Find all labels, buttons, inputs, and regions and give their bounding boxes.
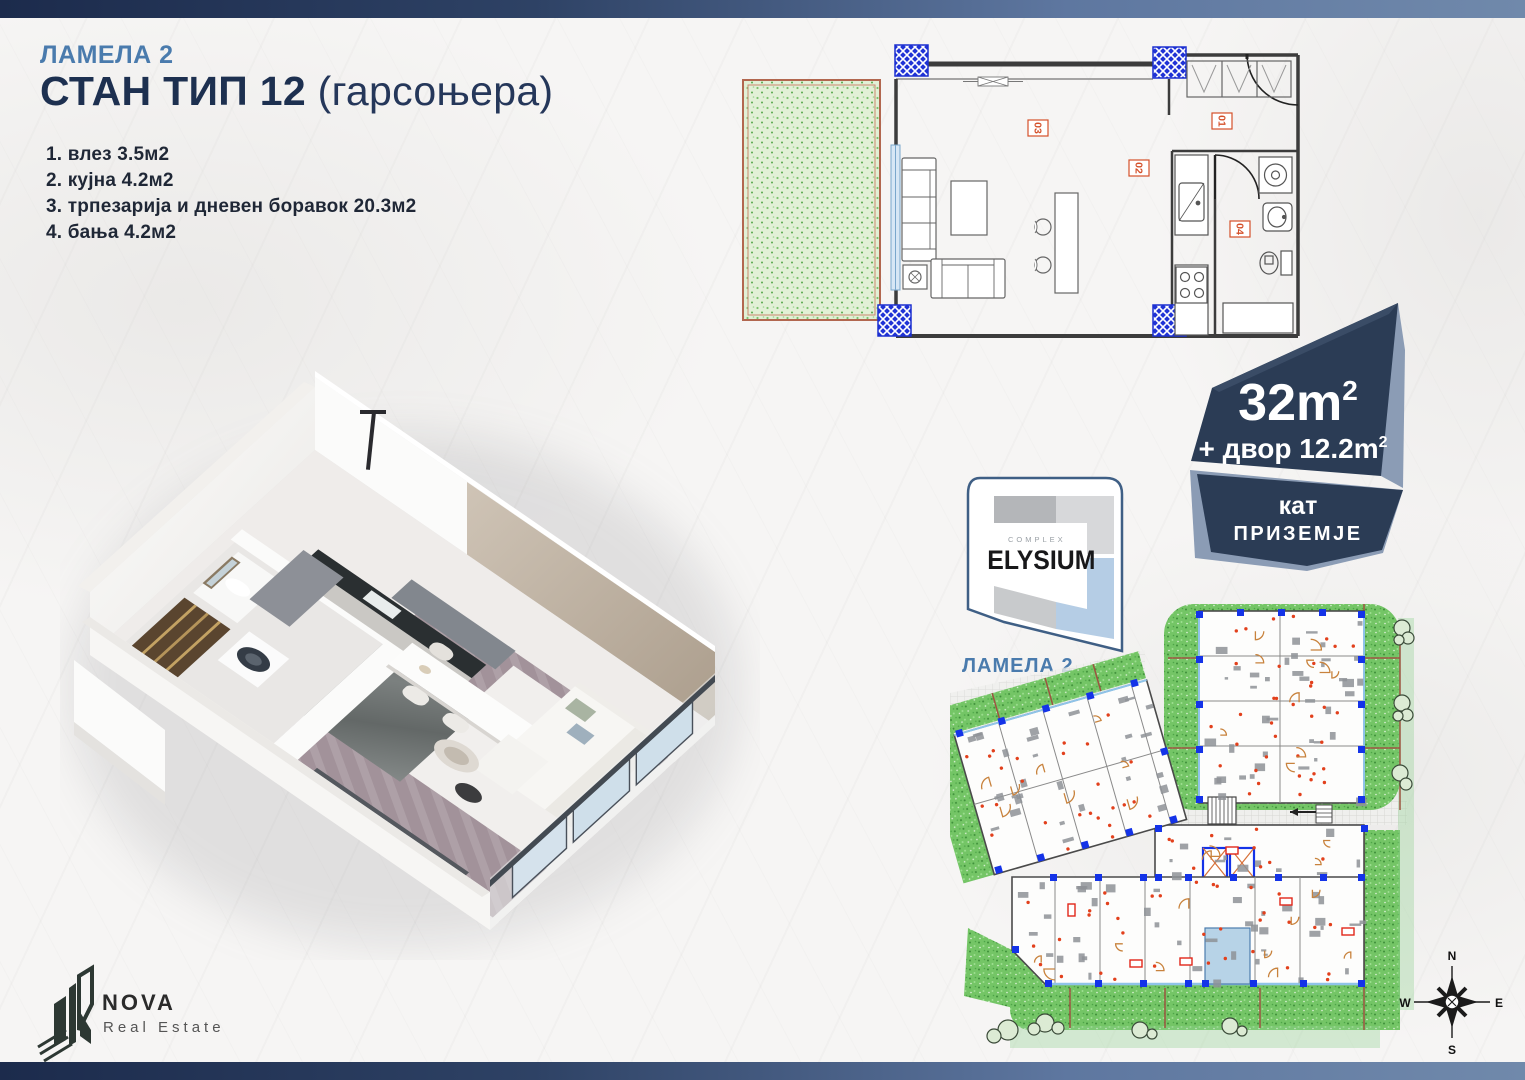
room-item: 4. бања 4.2м2 bbox=[46, 220, 416, 246]
room-label: 02 bbox=[1133, 162, 1145, 174]
building-upper-wing bbox=[1199, 611, 1364, 803]
highlighted-unit bbox=[1205, 928, 1250, 984]
yard-terrace bbox=[743, 80, 880, 320]
page-title: СТАН ТИП 12 (гарсоњера) bbox=[40, 68, 553, 114]
compass-w: W bbox=[1399, 996, 1411, 1010]
room-item: 1. влез 3.5м2 bbox=[46, 142, 416, 168]
complex-label: COMPLEX bbox=[1008, 535, 1066, 544]
site-plan: N S W E bbox=[950, 598, 1525, 1060]
room-item: 3. трпезарија и дневен боравок 20.3м2 bbox=[46, 194, 416, 220]
area-badge: 32m2 + двор 12.2m2 кат ПРИЗЕМЈЕ bbox=[1185, 298, 1425, 583]
building-bottom-wing bbox=[1012, 877, 1364, 984]
elysium-brand: ELYSIUM bbox=[987, 546, 1095, 575]
room-label: 04 bbox=[1234, 223, 1246, 235]
living-furniture bbox=[902, 158, 1078, 298]
lamela-heading: ЛАМЕЛА 2 bbox=[40, 42, 553, 68]
compass-n: N bbox=[1448, 949, 1457, 963]
room-item: 2. кујна 4.2м2 bbox=[46, 168, 416, 194]
apartment-3d-render bbox=[60, 360, 760, 960]
room-label: 03 bbox=[1032, 122, 1044, 134]
wardrobe bbox=[1187, 61, 1291, 97]
yard-value: + двор 12.2m2 bbox=[1198, 433, 1387, 464]
nova-logo: NOVA Real Estate bbox=[36, 952, 306, 1067]
top-accent-bar bbox=[0, 0, 1525, 18]
compass-s: S bbox=[1448, 1043, 1456, 1057]
nova-brand: NOVA bbox=[102, 990, 176, 1015]
nova-subtitle: Real Estate bbox=[103, 1019, 225, 1036]
bathroom-door-icon bbox=[1215, 155, 1259, 199]
area-value: 32m2 bbox=[1238, 374, 1358, 432]
window bbox=[891, 145, 900, 290]
compass-e: E bbox=[1495, 996, 1503, 1010]
title-suffix: (гарсоњера) bbox=[306, 68, 553, 114]
floor-value: ПРИЗЕМЈЕ bbox=[1233, 523, 1362, 545]
compass-rose: N S W E bbox=[1399, 949, 1503, 1057]
header: ЛАМЕЛА 2 СТАН ТИП 12 (гарсоњера) bbox=[40, 42, 553, 114]
nova-building-icon bbox=[38, 968, 92, 1061]
title-type: СТАН ТИП 12 bbox=[40, 68, 306, 114]
room-list: 1. влез 3.5м2 2. кујна 4.2м2 3. трпезари… bbox=[46, 142, 416, 246]
room-label: 01 bbox=[1216, 115, 1228, 127]
floor-word: кат bbox=[1279, 492, 1318, 520]
